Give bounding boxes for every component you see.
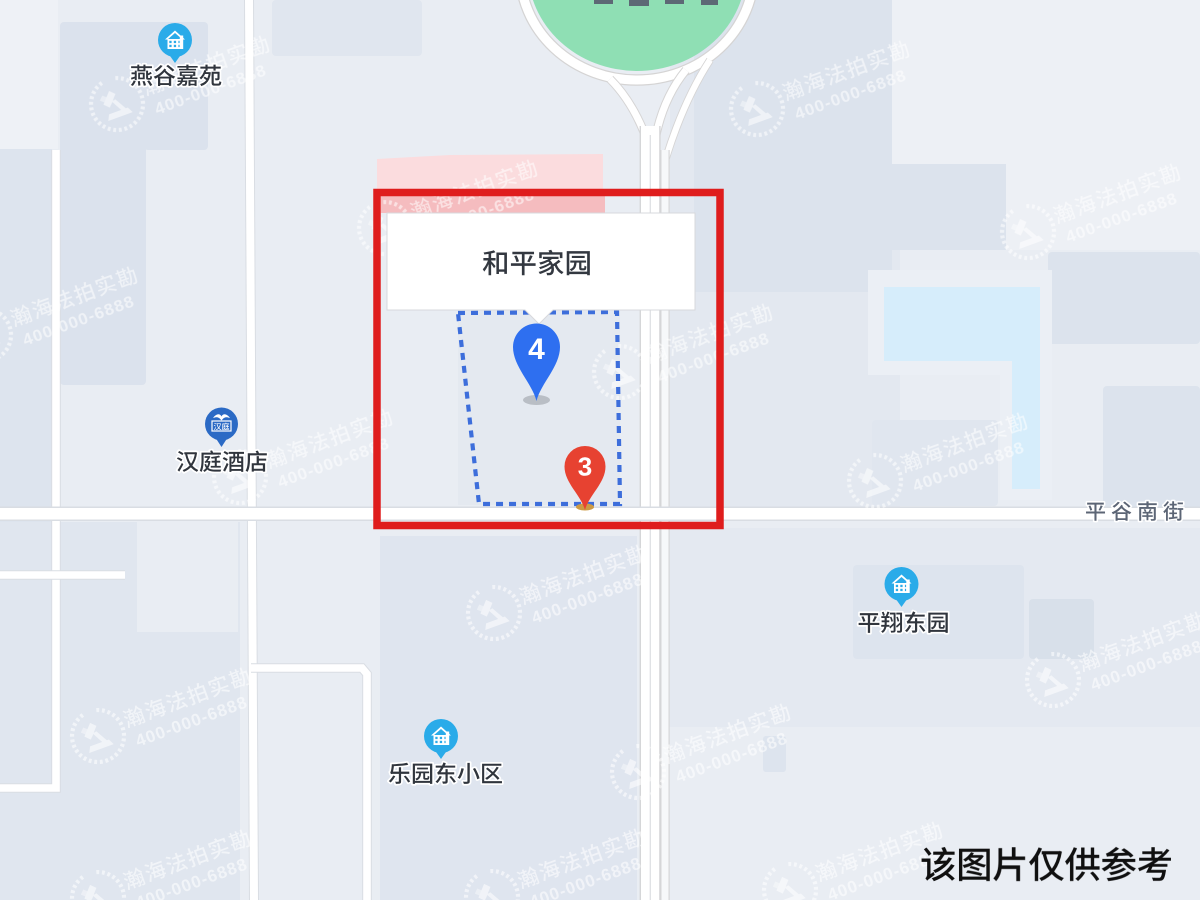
svg-text:4: 4	[528, 333, 545, 366]
svg-text:3: 3	[578, 452, 592, 482]
